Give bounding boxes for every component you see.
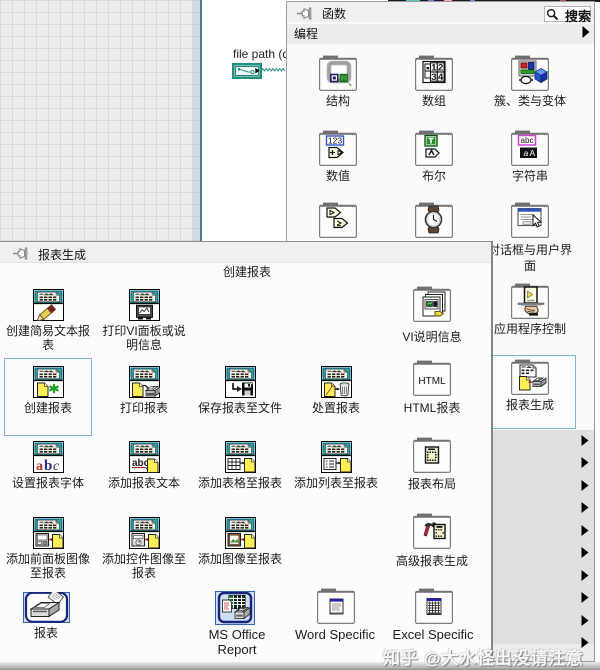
svg-text:HTML: HTML xyxy=(418,376,446,387)
svg-text:A: A xyxy=(530,148,536,158)
svg-text:abc: abc xyxy=(521,136,534,145)
svg-text:3: 3 xyxy=(431,72,436,83)
svg-text:a: a xyxy=(36,459,43,473)
svg-text:b: b xyxy=(44,458,52,473)
svg-text:c: c xyxy=(53,459,60,473)
svg-text:4: 4 xyxy=(438,72,444,83)
svg-text:123: 123 xyxy=(328,136,342,146)
svg-text:■: ■ xyxy=(426,65,429,71)
svg-text:a: a xyxy=(524,148,529,158)
